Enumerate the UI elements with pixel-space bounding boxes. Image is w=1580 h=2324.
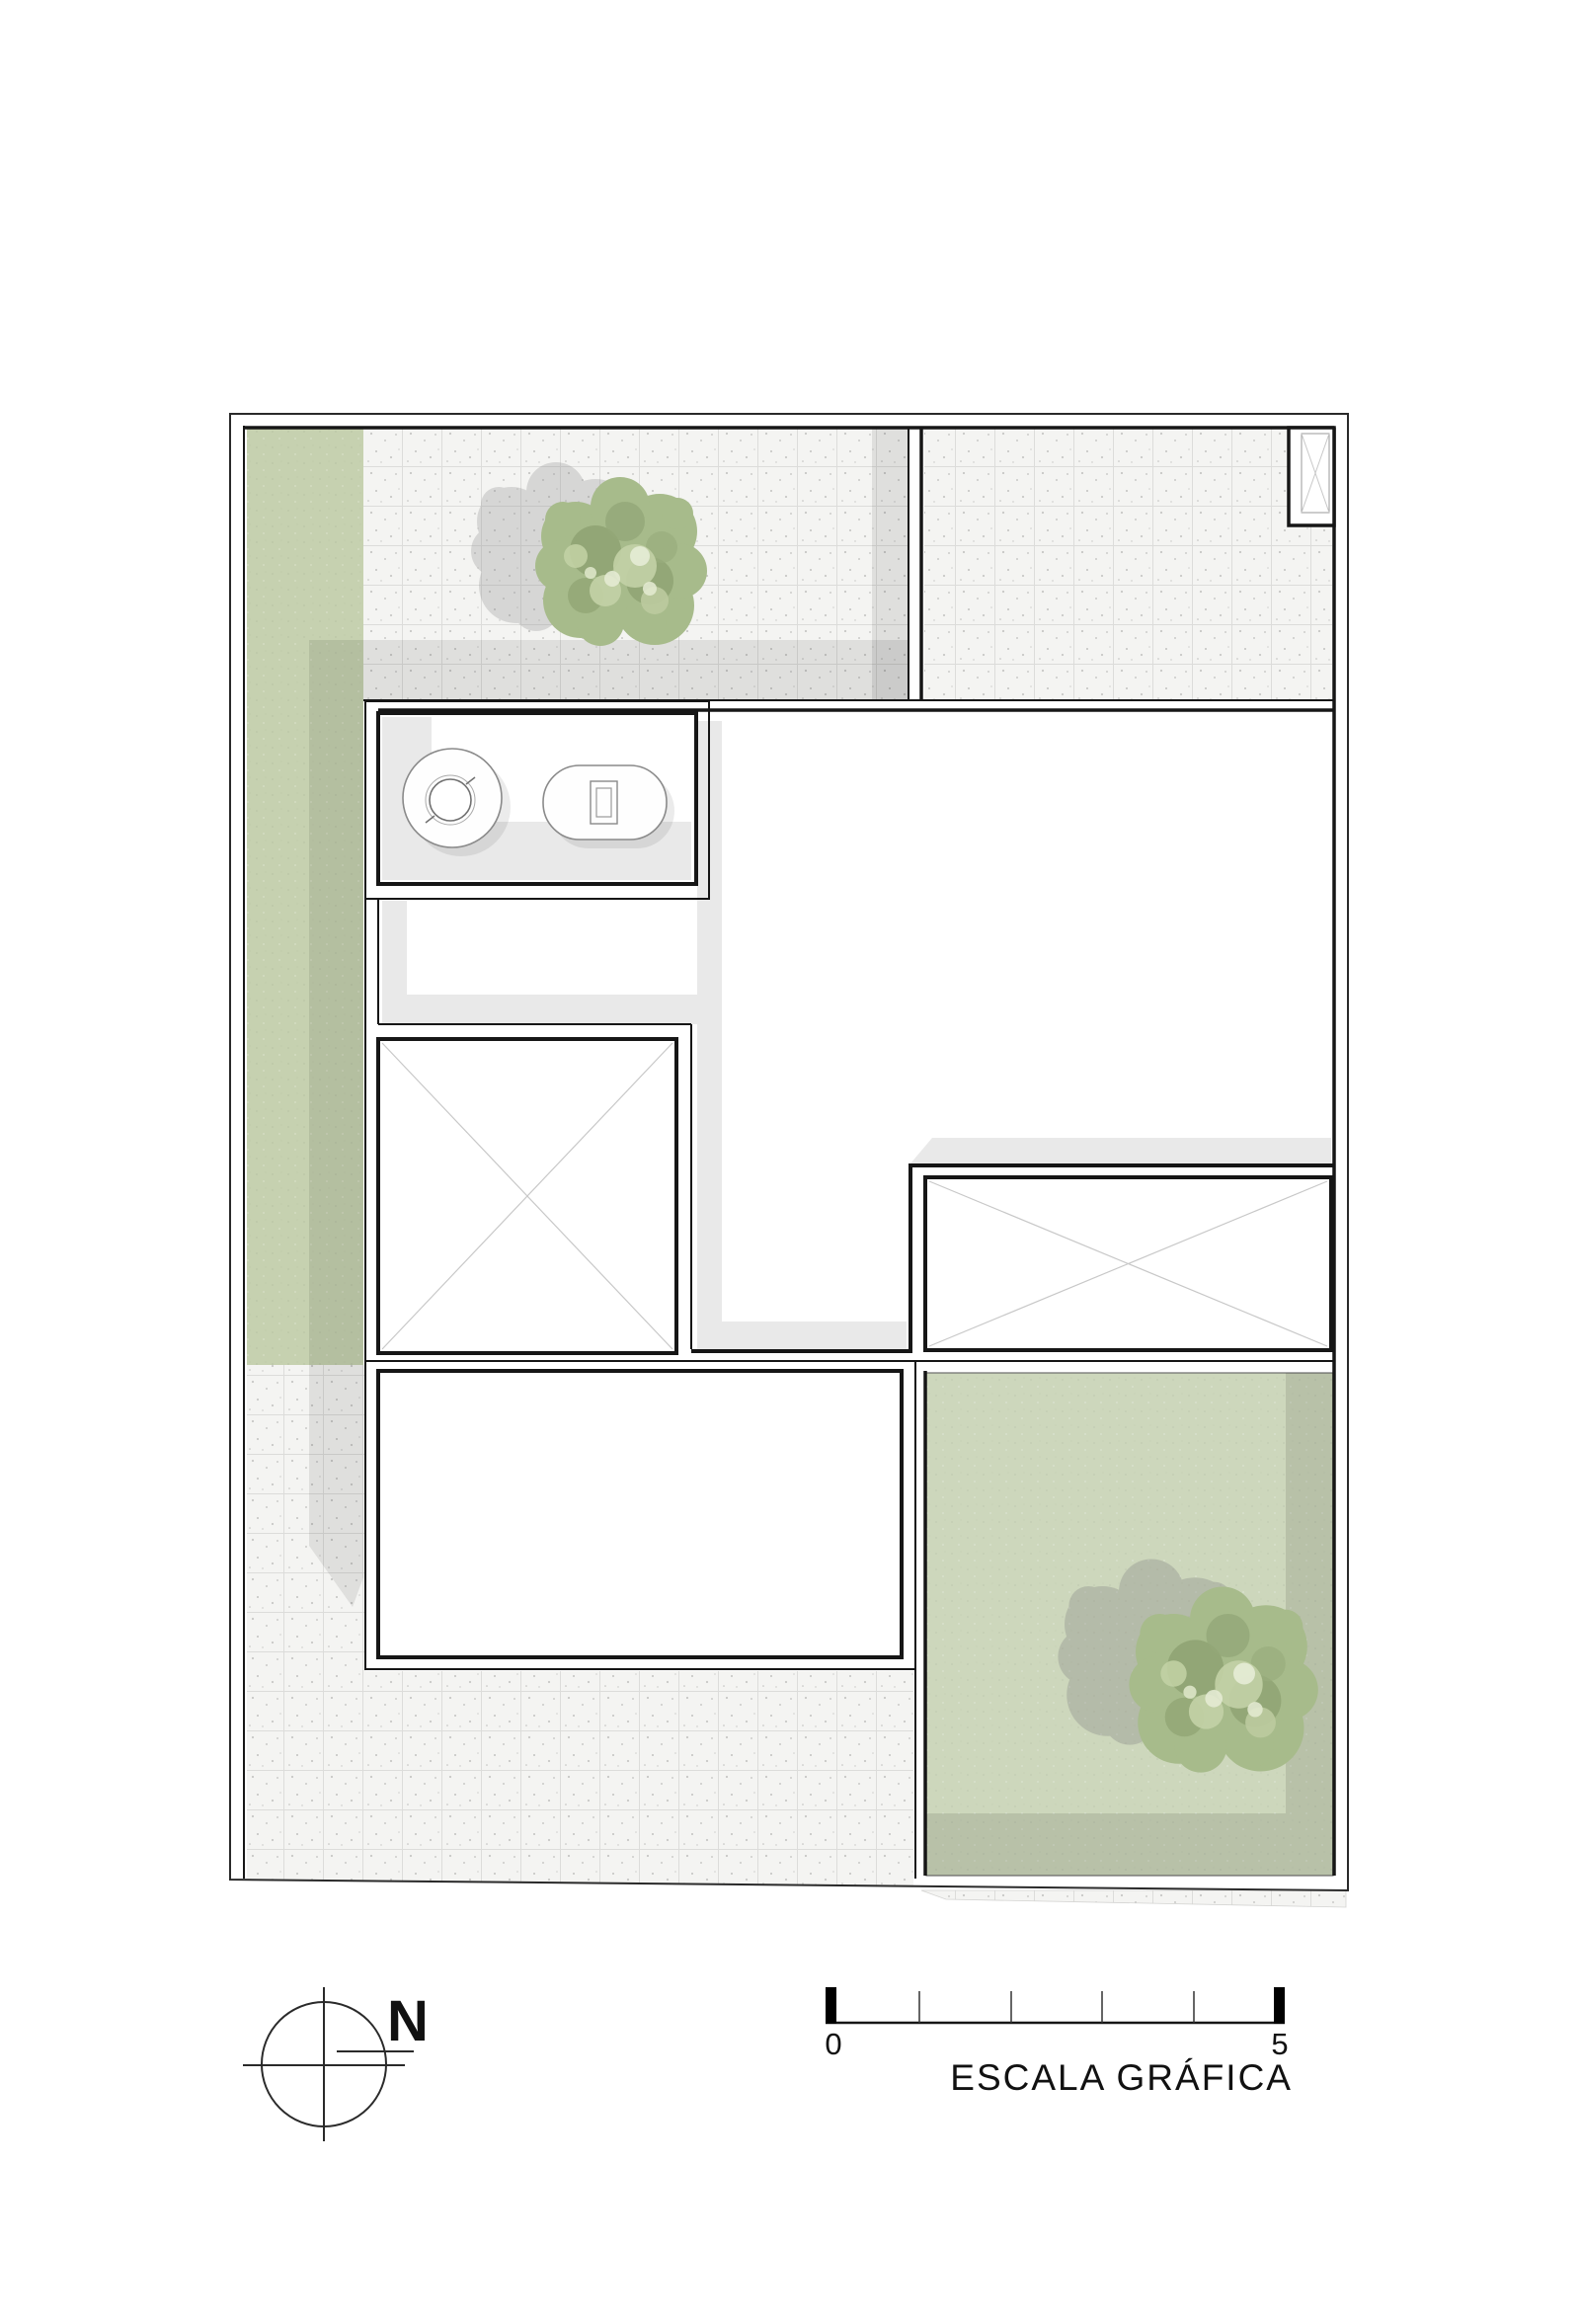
scale-caption: ESCALA GRÁFICA — [950, 2057, 1293, 2098]
scale-label-start: 0 — [825, 2027, 841, 2061]
stair-void — [378, 1039, 676, 1353]
main-room-south-shadow — [697, 1322, 907, 1349]
roof-shaft — [1289, 428, 1334, 525]
lower-room — [365, 1361, 915, 1669]
terrace-right-tiles — [924, 428, 1332, 700]
oval-toilet — [543, 765, 674, 848]
floor-plan-canvas: N 0 5 ESCALA GRÁFICA — [0, 0, 1580, 2324]
paper-background — [0, 0, 1580, 2324]
terrace-shadow-band — [363, 640, 908, 700]
right-void — [925, 1177, 1331, 1350]
scale-label-end: 5 — [1271, 2027, 1288, 2061]
north-label: N — [387, 1989, 429, 2053]
divider-wall-shadow — [872, 428, 908, 700]
floor-plan-page: N 0 5 ESCALA GRÁFICA — [0, 0, 1580, 2324]
lawn-strip-shadow — [309, 640, 363, 1607]
main-room-east-shadow — [910, 1138, 1331, 1163]
